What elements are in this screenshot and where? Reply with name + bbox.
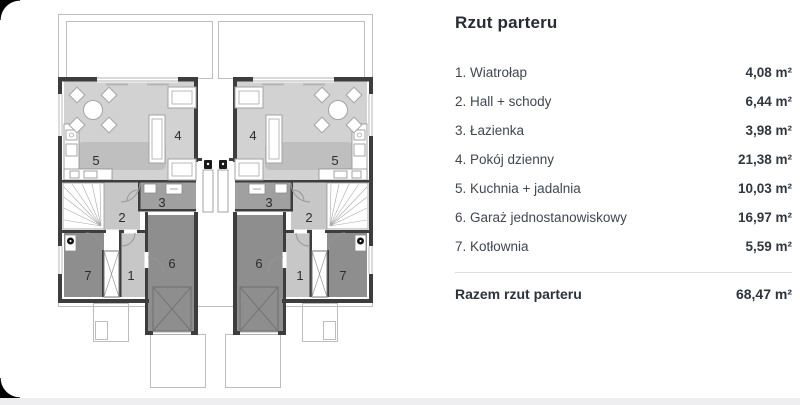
- room-label-2: 2: [305, 210, 312, 225]
- room-name: 4. Pokój dzienny: [455, 152, 554, 167]
- total-area: 68,47 m²: [736, 286, 792, 302]
- room-area: 10,03 m²: [738, 181, 792, 196]
- room-area: 3,98 m²: [745, 123, 792, 138]
- room-label-6: 6: [168, 256, 175, 271]
- room-label-2: 2: [118, 210, 125, 225]
- room-label-5: 5: [331, 153, 338, 168]
- room-list-item: 7. Kotłownia 5,59 m²: [455, 232, 792, 261]
- room-label-3: 3: [265, 195, 272, 210]
- room-name: 6. Garaż jednostanowiskowy: [455, 210, 627, 225]
- room-area: 6,44 m²: [745, 94, 792, 109]
- unit-left: [57, 15, 216, 388]
- room-name: 2. Hall + schody: [455, 94, 551, 109]
- room-label-4: 4: [249, 128, 256, 143]
- room-name: 3. Łazienka: [455, 123, 524, 138]
- room-list-item: 6. Garaż jednostanowiskowy 16,97 m²: [455, 203, 792, 232]
- room-label-3: 3: [158, 195, 165, 210]
- divider: [455, 272, 792, 273]
- room-area: 21,38 m²: [738, 152, 792, 167]
- total-label: Razem rzut parteru: [455, 286, 582, 302]
- room-label-4: 4: [174, 128, 181, 143]
- rounded-corner-top-left: [0, 0, 20, 20]
- room-area: 4,08 m²: [745, 65, 792, 80]
- floor-plan: 4 5 2 3 7 1 6 4 5 2 3 7 1 6: [0, 0, 440, 405]
- room-list-item: 2. Hall + schody 6,44 m²: [455, 87, 792, 116]
- area-panel: Rzut parteru 1. Wiatrołap 4,08 m² 2. Hal…: [455, 13, 792, 308]
- bottom-strip: [0, 398, 800, 405]
- room-label-7: 7: [339, 268, 346, 283]
- room-label-6: 6: [255, 256, 262, 271]
- room-list-item: 4. Pokój dzienny 21,38 m²: [455, 145, 792, 174]
- rounded-corner-bottom-left: [0, 378, 20, 398]
- room-list-item: 5. Kuchnia + jadalnia 10,03 m²: [455, 174, 792, 203]
- room-label-1: 1: [296, 268, 303, 283]
- room-name: 5. Kuchnia + jadalnia: [455, 181, 581, 196]
- room-area: 5,59 m²: [745, 239, 792, 254]
- unit-right: [216, 15, 375, 388]
- total-row: Razem rzut parteru 68,47 m²: [455, 279, 792, 308]
- room-label-1: 1: [127, 268, 134, 283]
- room-name: 7. Kotłownia: [455, 239, 529, 254]
- room-label-7: 7: [84, 268, 91, 283]
- page-title: Rzut parteru: [455, 13, 792, 33]
- room-list-item: 1. Wiatrołap 4,08 m²: [455, 58, 792, 87]
- room-label-5: 5: [92, 153, 99, 168]
- page: 4 5 2 3 7 1 6 4 5 2 3 7 1 6 Rzut parteru…: [0, 0, 800, 405]
- room-list: 1. Wiatrołap 4,08 m² 2. Hall + schody 6,…: [455, 58, 792, 261]
- room-list-item: 3. Łazienka 3,98 m²: [455, 116, 792, 145]
- room-name: 1. Wiatrołap: [455, 65, 527, 80]
- room-area: 16,97 m²: [738, 210, 792, 225]
